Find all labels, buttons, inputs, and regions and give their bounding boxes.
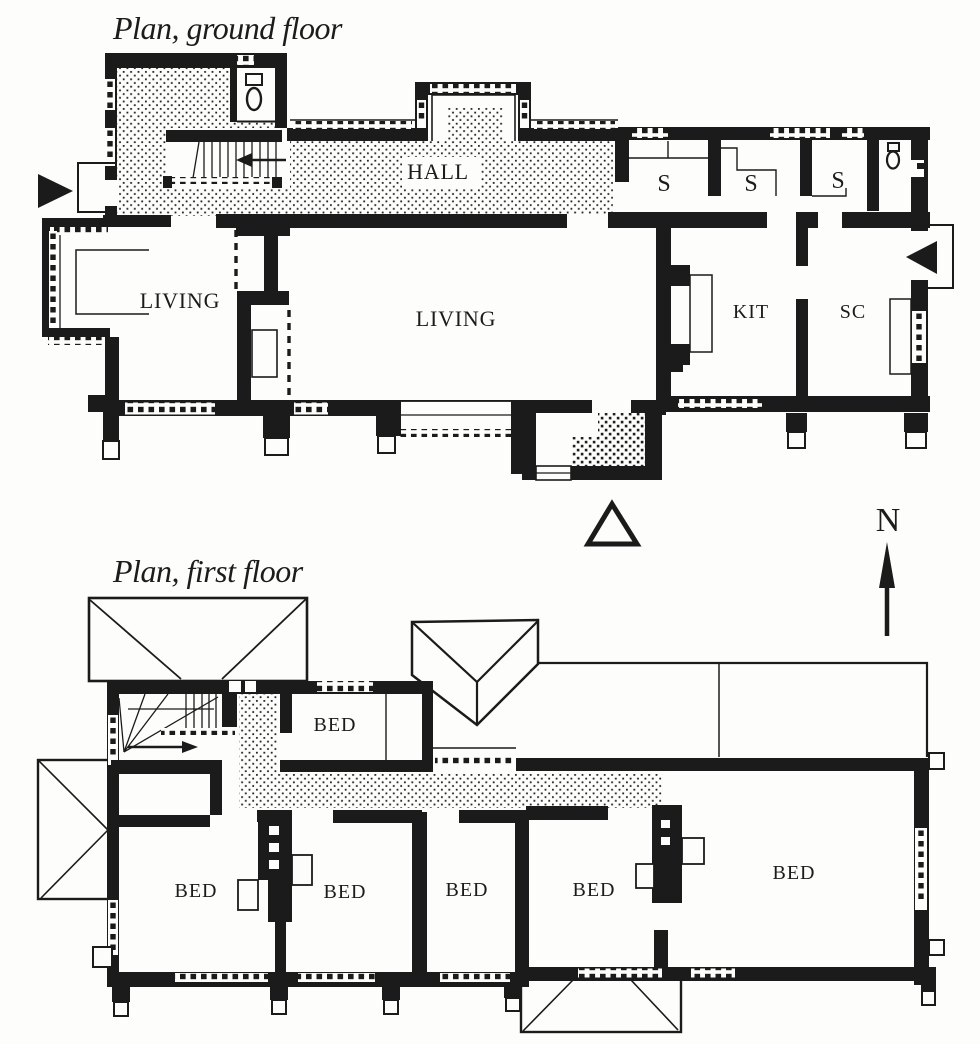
svg-text:LIVING: LIVING: [140, 288, 221, 313]
svg-text:LIVING: LIVING: [416, 306, 497, 331]
svg-text:S: S: [744, 171, 757, 197]
svg-text:BED: BED: [314, 714, 357, 736]
svg-text:S: S: [831, 168, 844, 194]
svg-text:HALL: HALL: [407, 159, 469, 184]
svg-text:BED: BED: [773, 862, 816, 884]
svg-text:Plan, first floor: Plan, first floor: [112, 553, 304, 589]
svg-text:BED: BED: [324, 881, 367, 903]
svg-text:N: N: [876, 502, 901, 539]
svg-text:SC: SC: [840, 301, 866, 323]
svg-text:BED: BED: [446, 879, 489, 901]
svg-text:KIT: KIT: [733, 301, 769, 323]
svg-text:BED: BED: [175, 880, 218, 902]
svg-text:S: S: [657, 171, 670, 197]
svg-text:BED: BED: [573, 879, 616, 901]
svg-text:Plan, ground floor: Plan, ground floor: [112, 10, 343, 46]
